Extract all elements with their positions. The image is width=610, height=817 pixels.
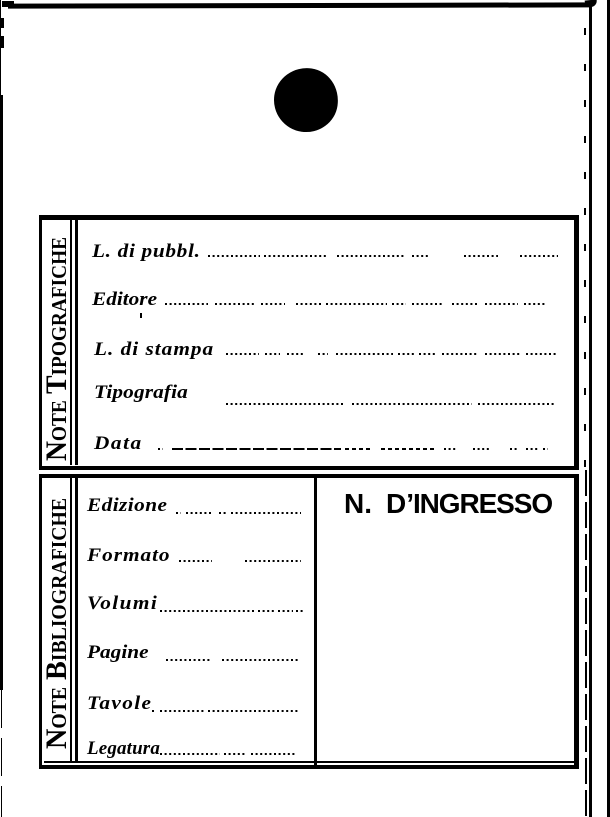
svg-text:Note Tipografiche: Note Tipografiche xyxy=(40,237,73,461)
svg-text:Note Bibliografiche: Note Bibliografiche xyxy=(40,498,73,749)
